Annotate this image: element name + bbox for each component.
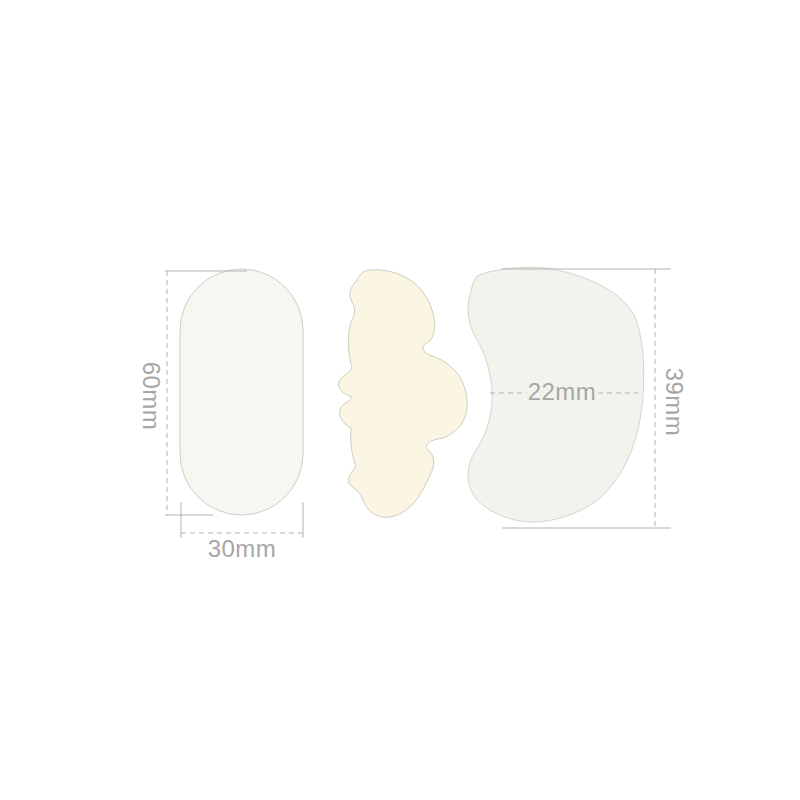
product-dimension-diagram: 60mm 30mm 22mm 39mm <box>0 0 800 800</box>
crescent-height-label: 39mm <box>662 368 686 437</box>
pill-width-label: 30mm <box>208 537 277 561</box>
pill-height-label: 60mm <box>139 362 163 431</box>
crescent-width-label: 22mm <box>528 380 597 404</box>
rounded-rectangle-patch-shape <box>180 269 303 515</box>
contour-patch-shape <box>339 270 467 517</box>
